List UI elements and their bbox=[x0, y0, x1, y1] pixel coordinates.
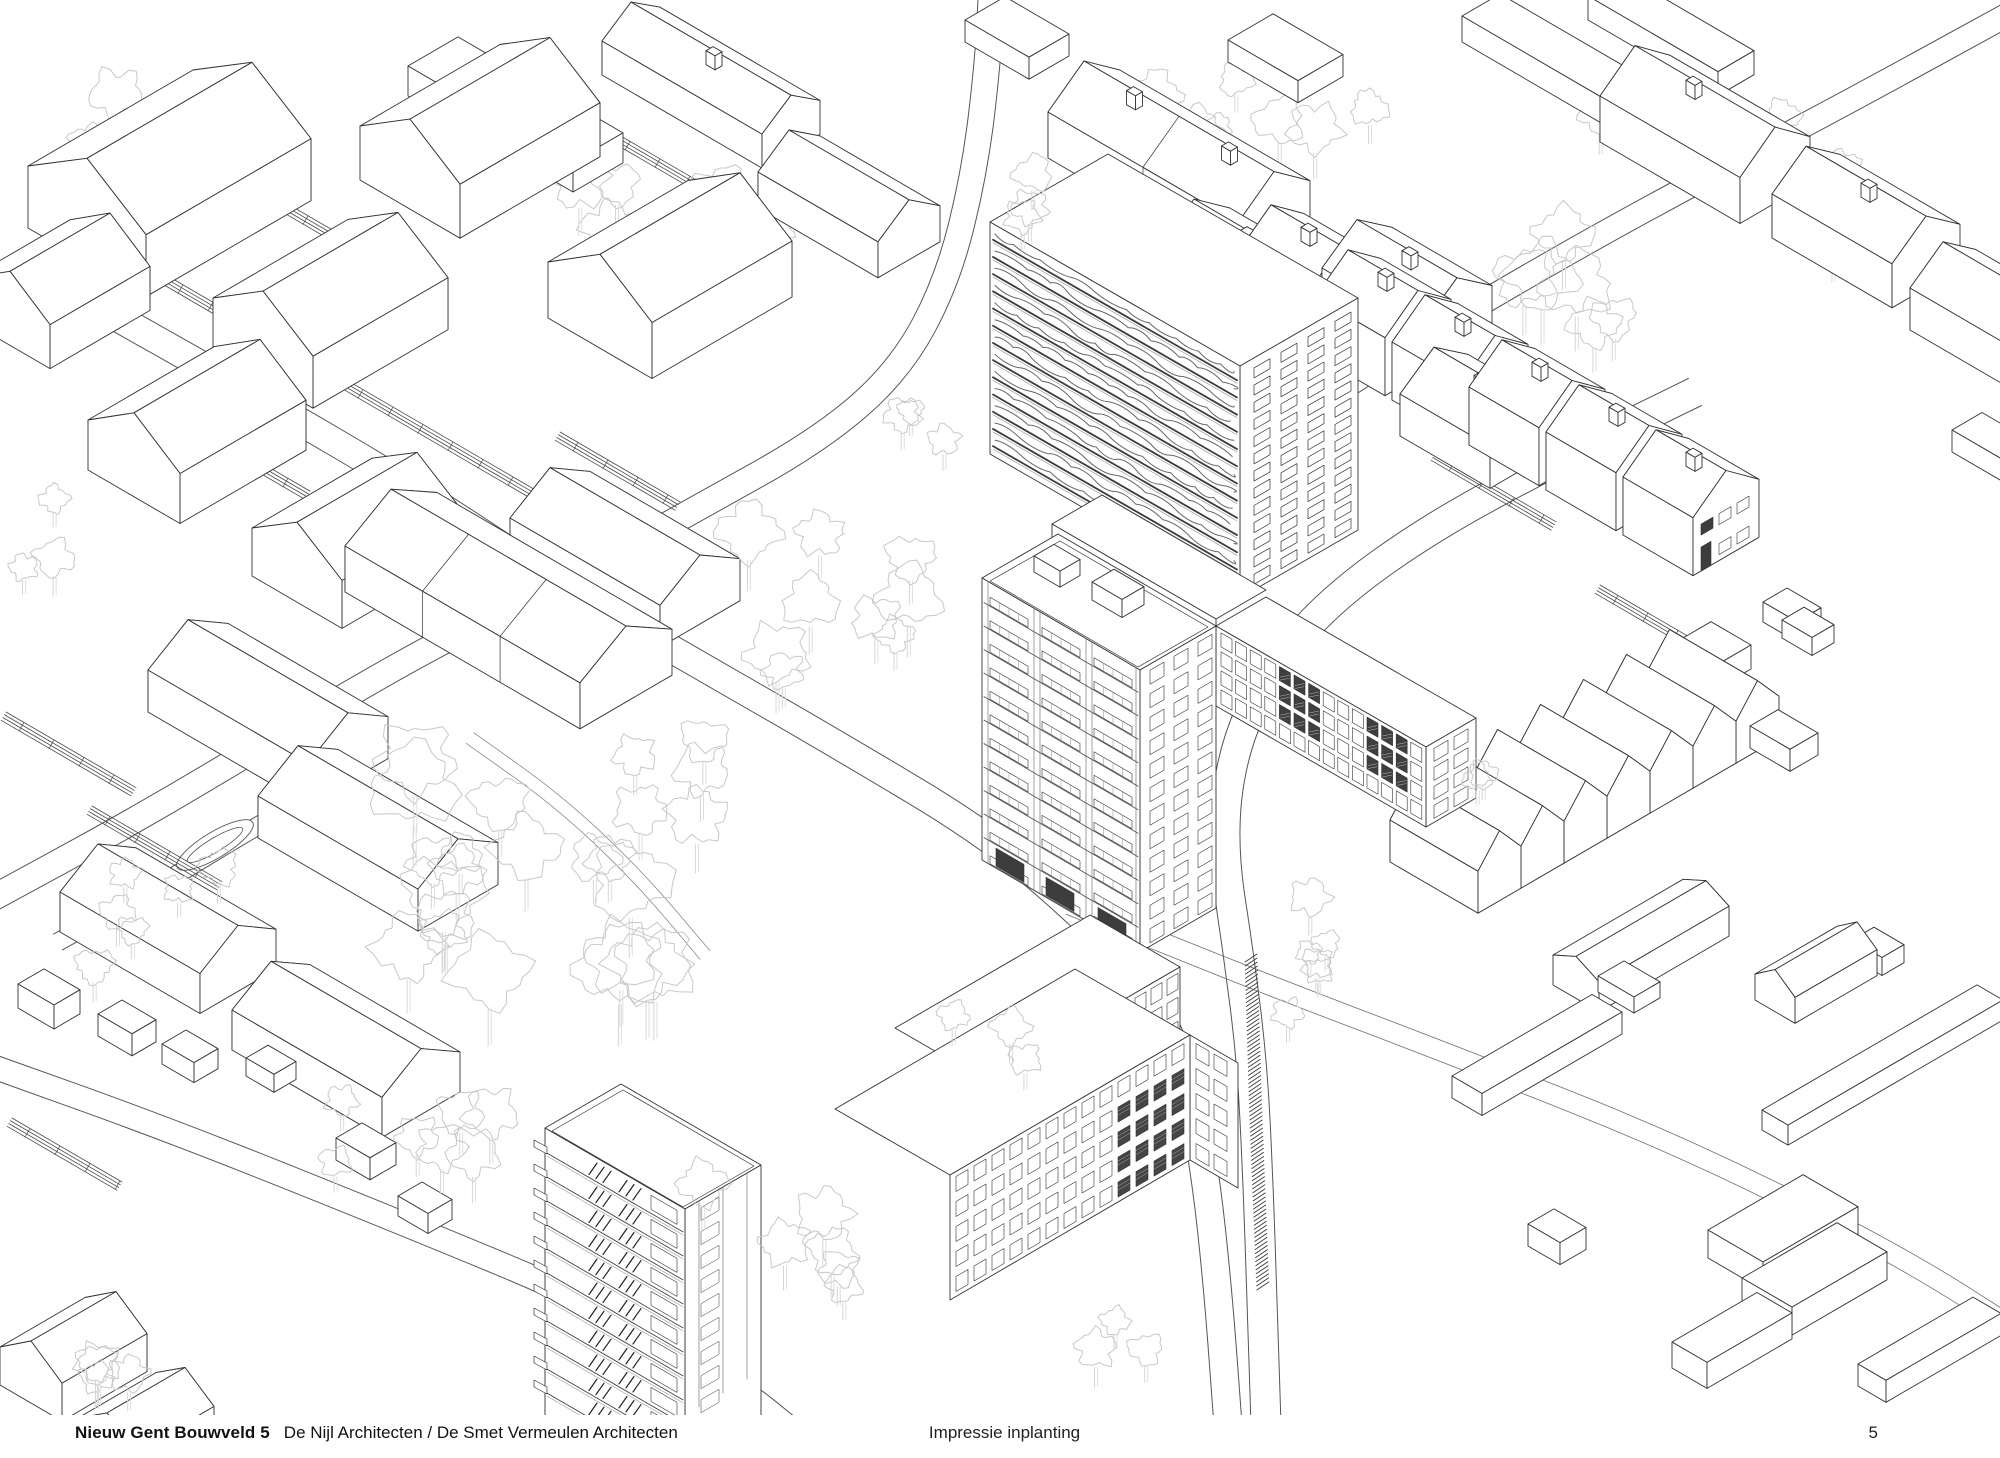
site-impression-drawing bbox=[0, 0, 2000, 1415]
footer-left: Nieuw Gent Bouwveld 5De Nijl Architecten… bbox=[75, 1423, 678, 1443]
page-footer: Nieuw Gent Bouwveld 5De Nijl Architecten… bbox=[0, 1415, 2000, 1458]
axonometric-site-drawing bbox=[0, 0, 2000, 1415]
document-page: Nieuw Gent Bouwveld 5De Nijl Architecten… bbox=[0, 0, 2000, 1458]
new-wing-l-block bbox=[1216, 597, 1476, 827]
architects-credit: De Nijl Architecten / De Smet Vermeulen … bbox=[284, 1423, 678, 1442]
bottom-tower bbox=[534, 1084, 761, 1415]
project-title: Nieuw Gent Bouwveld 5 bbox=[75, 1423, 270, 1442]
page-number: 5 bbox=[1869, 1423, 1878, 1443]
drawing-caption: Impressie inplanting bbox=[929, 1423, 1080, 1443]
